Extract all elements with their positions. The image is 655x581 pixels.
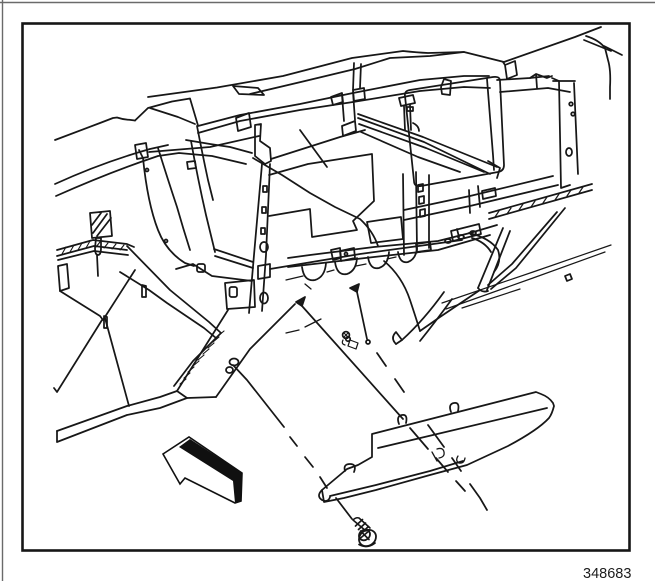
svg-text:348683: 348683	[583, 566, 631, 581]
